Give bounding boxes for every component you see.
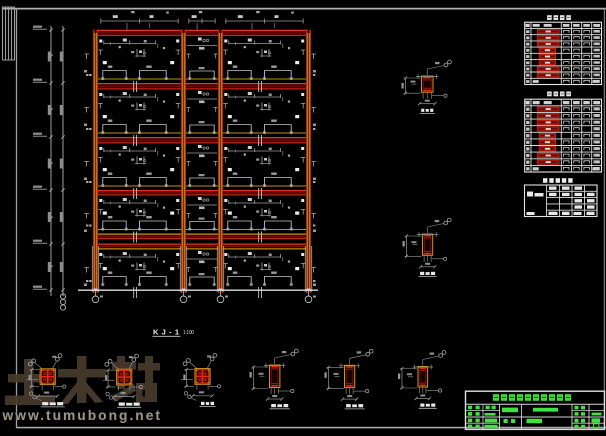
svg-text:www.tumubong.net: www.tumubong.net [2,408,162,423]
svg-text:1:100: 1:100 [183,330,194,336]
